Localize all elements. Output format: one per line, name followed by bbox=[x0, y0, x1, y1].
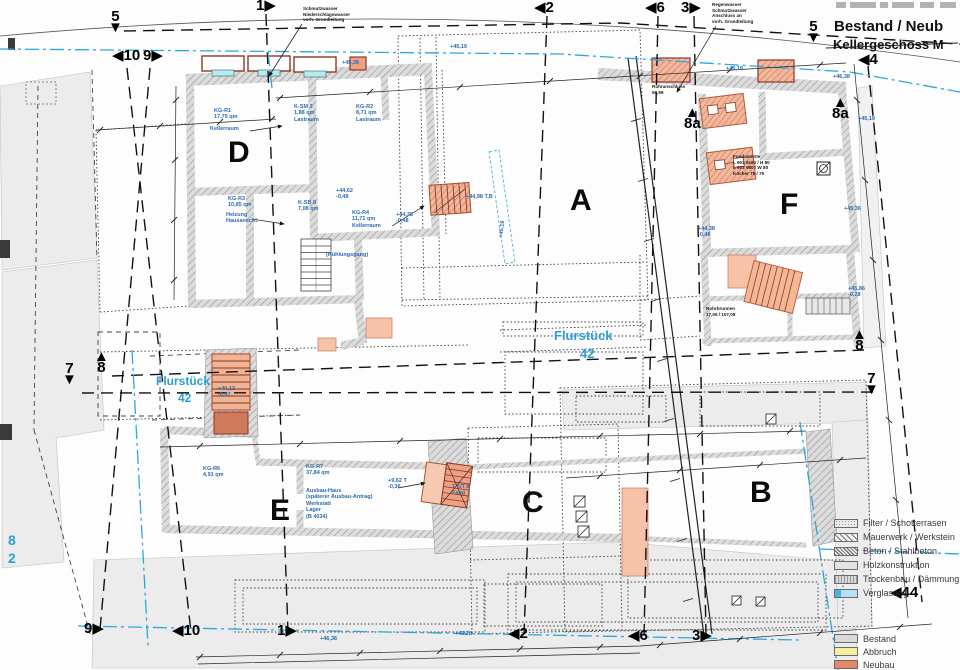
stair-new-f bbox=[744, 261, 803, 314]
legend-label: Neubau bbox=[863, 660, 895, 670]
chimney-2 bbox=[758, 60, 794, 82]
legend-row: Neubau bbox=[834, 658, 897, 670]
legend-label: Trockenbau / Dämmung bbox=[863, 574, 959, 584]
legend-materials: Filter / Schotterrasen Mauerwerk / Werks… bbox=[834, 516, 959, 600]
foundation-block-1 bbox=[699, 93, 746, 128]
stair-small-f bbox=[806, 298, 850, 314]
foundation-block-2 bbox=[706, 147, 756, 184]
building-label-c: C bbox=[522, 486, 544, 520]
neubau-strip bbox=[622, 488, 648, 576]
swatch-beton-icon bbox=[834, 547, 858, 556]
stair-new-left bbox=[212, 354, 250, 434]
glass-sliver bbox=[489, 150, 515, 264]
swatch-mauerwerk-icon bbox=[834, 533, 858, 542]
legend-row: Verglasung bbox=[834, 586, 959, 600]
legend-row: Mauerwerk / Werkstein bbox=[834, 530, 959, 544]
swatch-holz-icon bbox=[834, 561, 858, 570]
legend-row: Abbruch bbox=[834, 645, 897, 658]
floor-plan-sheet: 5 ▼1▶◀2◀63▶5 ▼◀109▶7 ▼▲ 8◀4▲ 8a▲ 8a▲ 87 … bbox=[0, 0, 960, 670]
building-label-e: E bbox=[270, 494, 290, 528]
stair-existing-d bbox=[301, 239, 331, 291]
swatch-abbruch-icon bbox=[834, 647, 858, 656]
legend-label: Filter / Schotterrasen bbox=[863, 518, 947, 528]
legend-label: Verglasung bbox=[863, 588, 908, 598]
legend-label: Holzkonstruktion bbox=[863, 560, 930, 570]
legend-row: Holzkonstruktion bbox=[834, 558, 959, 572]
legend-row: Bestand bbox=[834, 632, 897, 645]
legend-label: Mauerwerk / Werkstein bbox=[863, 532, 955, 542]
swatch-filter-icon bbox=[834, 519, 858, 528]
clipped-title-fragment bbox=[836, 2, 956, 8]
legend-label: Bestand bbox=[863, 634, 896, 644]
legend-status: Bestand Abbruch Neubau bbox=[834, 632, 897, 670]
building-label-b: B bbox=[750, 476, 772, 510]
walls-existing bbox=[164, 69, 858, 545]
stair-new-mid bbox=[429, 183, 471, 216]
plan-drawing bbox=[0, 0, 960, 670]
swatch-bestand-icon bbox=[834, 634, 858, 643]
swatch-trockenbau-icon bbox=[834, 575, 858, 584]
legend-row: Trockenbau / Dämmung bbox=[834, 572, 959, 586]
sheet-title: Bestand / Neub bbox=[834, 18, 943, 35]
legend-label: Abbruch bbox=[863, 647, 897, 657]
street-edge bbox=[0, 19, 960, 62]
swatch-neubau-icon bbox=[834, 660, 858, 669]
stair-new-e-right bbox=[421, 460, 472, 508]
building-label-a: A bbox=[570, 184, 592, 218]
legend-label: Beton / Stahlbeton bbox=[863, 546, 937, 556]
building-label-f: F bbox=[780, 188, 798, 222]
sheet-subtitle: Kellergeschoss M bbox=[833, 37, 944, 52]
neubau-elements bbox=[202, 56, 803, 576]
legend-row: Filter / Schotterrasen bbox=[834, 516, 959, 530]
legend-row: Beton / Stahlbeton bbox=[834, 544, 959, 558]
building-label-d: D bbox=[228, 136, 250, 170]
swatch-verglasung-icon bbox=[834, 589, 858, 598]
